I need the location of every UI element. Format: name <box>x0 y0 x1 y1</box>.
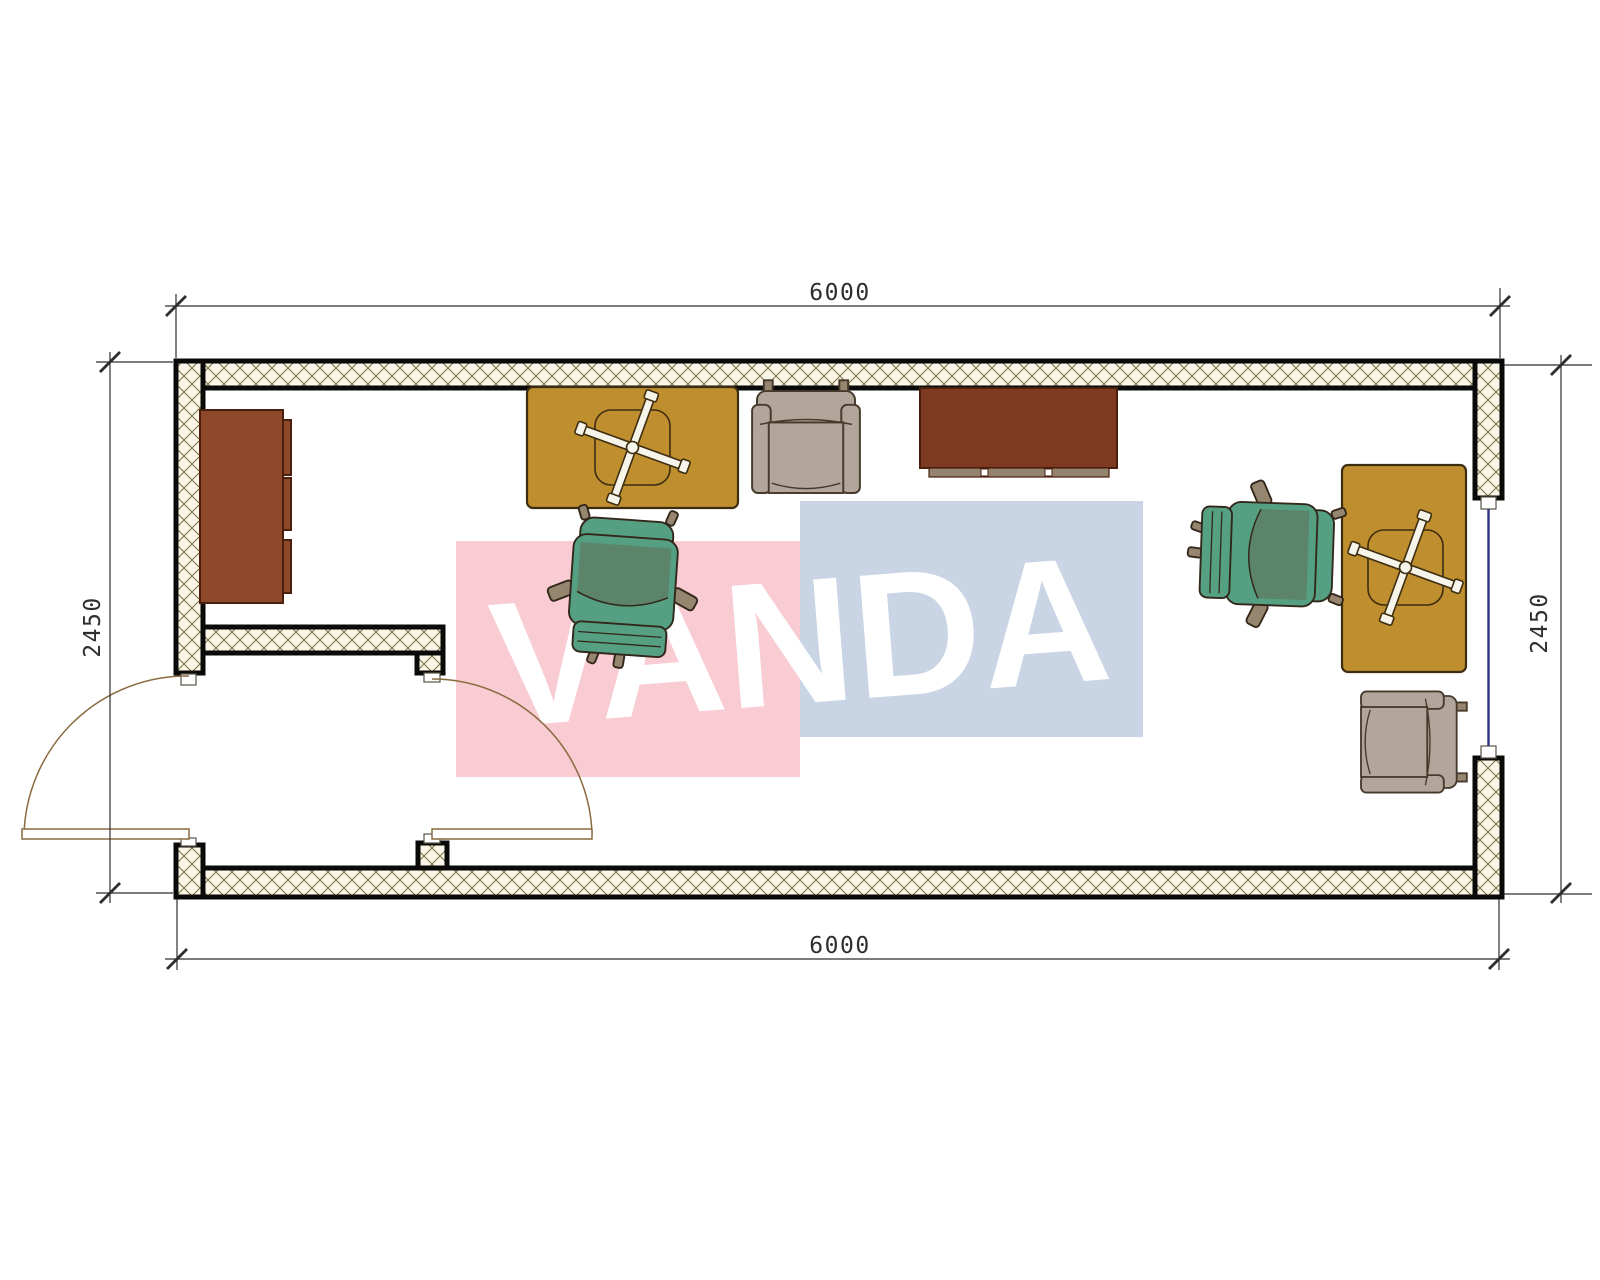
wall-right-lower <box>1475 758 1502 897</box>
wall-partition-horizontal <box>203 627 443 653</box>
cabinet-body <box>200 410 283 603</box>
wall-left-upper <box>176 361 203 673</box>
sideboard-base <box>929 468 1109 477</box>
floor-plan-page: VANDA <box>0 0 1600 1280</box>
wall-left-lower <box>176 845 203 897</box>
cabinet-door-panel <box>283 478 291 530</box>
interior-door-leaf <box>432 829 592 839</box>
floor-plan-canvas: VANDA <box>0 0 1600 1280</box>
sideboard-body <box>920 388 1117 468</box>
jamb-window-bottom <box>1481 746 1496 758</box>
wall-bottom <box>176 868 1502 897</box>
wall-door-stub-bottom <box>418 843 447 868</box>
dim-label-left: 2450 <box>80 596 106 657</box>
sideboard-foot <box>981 469 988 476</box>
sideboard <box>920 388 1117 477</box>
wall-partition-stub <box>417 653 443 673</box>
armchair-top <box>752 380 860 493</box>
cabinet-door-panel <box>283 420 291 475</box>
cabinet-door-panel <box>283 540 291 593</box>
desk-right <box>1342 465 1466 672</box>
wall-right-upper <box>1475 361 1502 498</box>
desk-left <box>527 387 738 508</box>
entrance-door-leaf <box>22 829 189 839</box>
dim-label-right: 2450 <box>1527 592 1553 653</box>
jamb-interior-top <box>424 673 440 682</box>
armchair-right <box>1361 691 1467 792</box>
jamb-window-top <box>1481 497 1496 509</box>
sideboard-foot <box>1045 469 1052 476</box>
dim-label-top: 6000 <box>809 280 870 306</box>
cabinet <box>200 410 291 603</box>
watermark: VANDA <box>456 501 1143 777</box>
dim-label-bottom: 6000 <box>809 933 870 959</box>
